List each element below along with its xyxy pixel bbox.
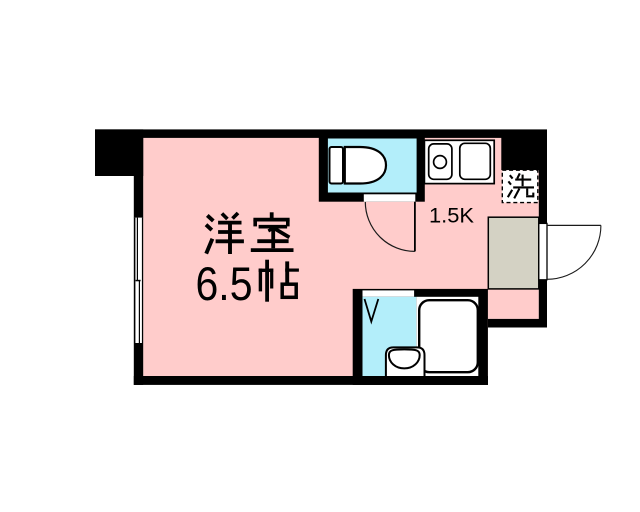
svg-text:1.5K: 1.5K	[429, 204, 474, 227]
svg-text:6.5: 6.5	[196, 258, 253, 311]
